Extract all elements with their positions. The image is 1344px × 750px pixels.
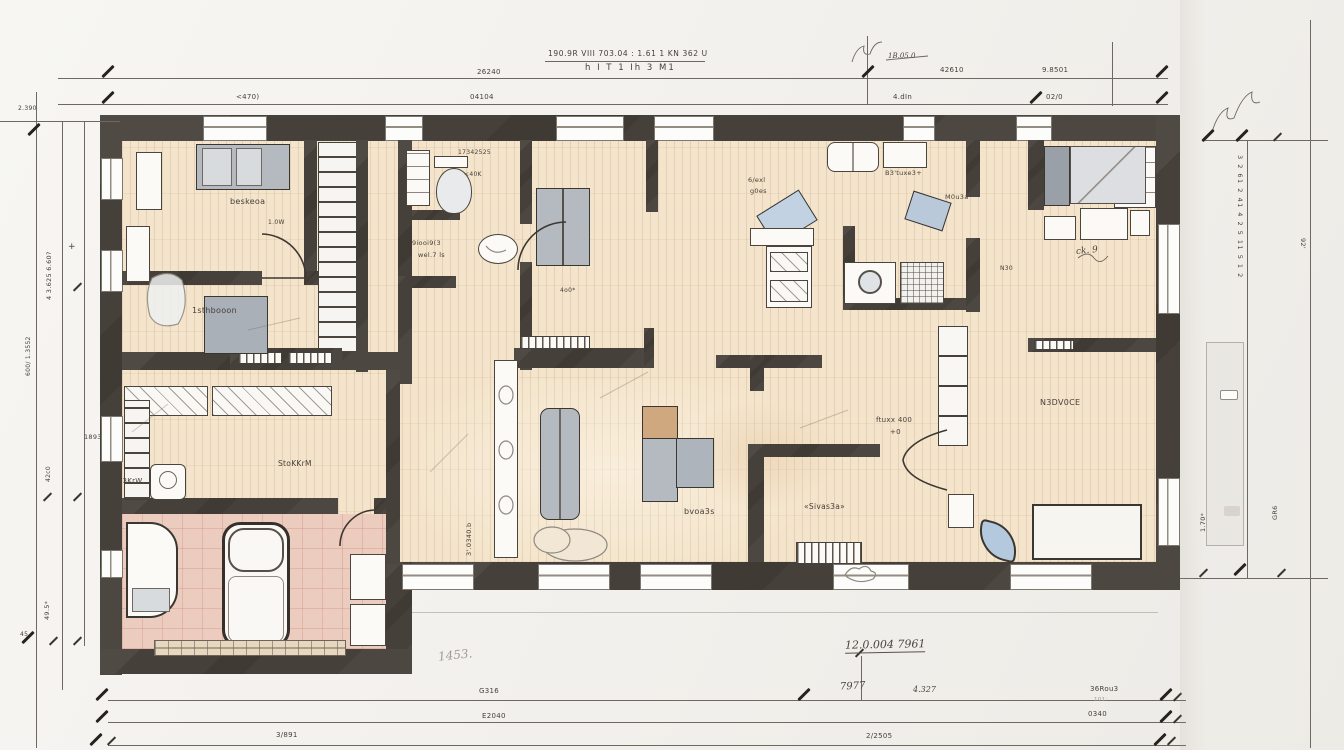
tick bbox=[73, 282, 82, 291]
tick bbox=[95, 688, 108, 701]
dim-label: 4.dIn bbox=[893, 93, 912, 101]
bed-1-pillow-1 bbox=[202, 148, 232, 186]
dim-label-hand: 4.327 bbox=[913, 685, 936, 694]
dim-label: + bbox=[68, 242, 76, 252]
room-label-store-r1: ftuxx 400 bbox=[876, 416, 912, 424]
wall-trbed-left bbox=[1028, 140, 1044, 210]
wing-shelf-box-2 bbox=[350, 604, 386, 646]
dim-label: G316 bbox=[479, 687, 499, 695]
wall-kitchen-right-a bbox=[966, 140, 980, 197]
tick bbox=[73, 492, 82, 501]
kitchen-bed-small bbox=[883, 142, 927, 168]
right-wc-fixture bbox=[948, 494, 974, 528]
dim-note-top: 1B.05.0 bbox=[888, 52, 915, 60]
room-label-bedroom1-sub: 1.0W bbox=[268, 220, 285, 227]
drawing-title-line1: 190.9R VIII 703.04 : 1.61 1 KN 362 U bbox=[548, 50, 708, 59]
t-wall-horizontal bbox=[716, 355, 822, 368]
room-label-kitchen-2: g0es bbox=[750, 188, 767, 195]
dim-label: 3/891 bbox=[276, 731, 298, 739]
wall-bedroom1-right bbox=[304, 140, 317, 285]
tr-bed-headboard bbox=[1044, 146, 1070, 206]
tick bbox=[27, 123, 40, 136]
dim-label: 2/2505 bbox=[866, 732, 892, 740]
tick bbox=[95, 710, 108, 723]
round-basin bbox=[478, 234, 518, 264]
dim-label-hand: 7977 bbox=[840, 680, 866, 692]
fridge-hatch-band-1 bbox=[770, 252, 808, 272]
wall-corridor-left-a bbox=[520, 140, 532, 224]
dim-label: 1893 bbox=[84, 434, 102, 441]
dim-label: 2.390 bbox=[18, 106, 37, 113]
tick bbox=[1155, 91, 1168, 104]
scribble-top-right bbox=[1212, 92, 1260, 132]
shelf-band-slats-2 bbox=[288, 352, 332, 364]
room-label-hall: 4o0* bbox=[560, 288, 576, 295]
tick bbox=[49, 636, 58, 645]
room-label-bedroom2: 1sthbooon bbox=[192, 306, 237, 315]
kitchen-sofa-white bbox=[827, 142, 879, 172]
dim-label-rotated: 49.5* bbox=[44, 601, 51, 620]
bed-1-pillow-2 bbox=[236, 148, 262, 186]
dresser-1 bbox=[136, 152, 162, 210]
dim-label: 36Rou3 bbox=[1090, 685, 1118, 693]
dim-line-left-3 bbox=[84, 122, 85, 646]
tick bbox=[101, 91, 114, 104]
handwritten-note-main: 12.0.004 7961 bbox=[845, 637, 926, 653]
dim-line-bottom-1 bbox=[108, 700, 1186, 701]
tick bbox=[1029, 91, 1042, 104]
room-label-kitchen-1: 6/exl bbox=[748, 177, 765, 184]
window-top-2 bbox=[385, 116, 423, 141]
shadow-line-bottom bbox=[412, 612, 1158, 613]
tr-nightstand bbox=[1044, 216, 1076, 240]
dim-connector-862 bbox=[861, 656, 862, 700]
window-right-1 bbox=[1158, 224, 1180, 314]
window-top-6 bbox=[1016, 116, 1052, 141]
shelfbar-slats bbox=[520, 336, 590, 349]
room-label-shelf-rotated: 3'.0340.b bbox=[466, 523, 473, 556]
bath-sink-cabinet bbox=[406, 150, 430, 206]
room-label-store-r1b: +0 bbox=[890, 428, 901, 436]
wall-storeroom-right bbox=[386, 370, 400, 564]
room-label-shower-2: wel.7 ls bbox=[418, 252, 445, 259]
right-room-whiteboard bbox=[1032, 504, 1142, 560]
radiator bbox=[796, 542, 862, 564]
dim-label-rotated: 4 3.625 6.60? bbox=[46, 251, 53, 300]
room-label-store-l2: 4l0u3KrW bbox=[106, 477, 143, 485]
bathtub-body bbox=[228, 576, 284, 642]
closet-shelving bbox=[318, 142, 358, 354]
wall-bathroom-top-b bbox=[374, 498, 386, 514]
dim-label: 02/0 bbox=[1046, 93, 1063, 101]
dim-line-bottom-3 bbox=[108, 745, 1186, 746]
window-bottom-4 bbox=[833, 564, 909, 590]
room-label-bedroom1: beskeoa bbox=[230, 197, 265, 206]
store-washer-door bbox=[159, 471, 177, 489]
dim-label: 42610 bbox=[940, 66, 964, 74]
dim-label-rotated: 600/ 1.3552 bbox=[26, 336, 33, 376]
drawing-title-line2: h I T 1 Ih 3 M1 bbox=[585, 64, 676, 74]
dim-label: 0340 bbox=[1088, 710, 1107, 718]
title-underline bbox=[545, 61, 705, 62]
tick bbox=[73, 636, 82, 645]
window-top-4 bbox=[654, 116, 714, 141]
wall-bathroom-top-a bbox=[122, 498, 338, 514]
window-left-3 bbox=[101, 416, 123, 462]
store-shelf-2 bbox=[212, 386, 332, 416]
window-left-2 bbox=[101, 250, 123, 292]
bathtub-head bbox=[228, 528, 284, 572]
wall-stub-center bbox=[644, 328, 654, 368]
dim-label-rotated: 92' bbox=[1299, 238, 1306, 249]
dim-line-top-2 bbox=[58, 104, 1168, 105]
window-left-4 bbox=[101, 550, 123, 578]
vanity-sink bbox=[132, 588, 170, 612]
room-label-living: bvoa3s bbox=[684, 507, 715, 516]
tr-bed-mattress bbox=[1070, 146, 1146, 204]
desk-bedroom1 bbox=[204, 296, 268, 354]
dim-line-right-v1 bbox=[1247, 141, 1248, 579]
washing-machine-door bbox=[858, 270, 882, 294]
room-label-store-r2: «Sivas3a» bbox=[804, 503, 845, 512]
dim-line-top-1 bbox=[58, 78, 1168, 79]
window-top-1 bbox=[203, 116, 267, 141]
window-right-2 bbox=[1158, 478, 1180, 546]
sofa-vertical bbox=[540, 408, 580, 520]
dim-line-left-1 bbox=[36, 92, 37, 748]
l-wall-horizontal bbox=[748, 444, 880, 457]
handwritten-note-left: 1453. bbox=[437, 646, 473, 664]
room-label-shower-1: 9iooi9(3 bbox=[412, 240, 441, 247]
dim-guide-1113 bbox=[1112, 42, 1113, 106]
tick bbox=[1277, 568, 1286, 577]
side-table-tan bbox=[642, 406, 678, 440]
tick bbox=[1155, 65, 1168, 78]
right-shade bbox=[1180, 0, 1206, 750]
wall-kitchen-right-b bbox=[966, 238, 980, 312]
dim-label-rotated: 3 2 61 2 41 4 2 5 11 5 1 2 bbox=[1236, 155, 1243, 279]
toilet-tank bbox=[434, 156, 468, 168]
wall-hall-right bbox=[646, 140, 658, 212]
room-label-kitchen-top: B3'tuxe3+ bbox=[885, 170, 922, 177]
half-wall-shelfbar bbox=[514, 348, 654, 368]
fridge-hatch-band-2 bbox=[770, 280, 808, 302]
dim-label: 45 bbox=[20, 632, 28, 639]
wing-window-sill bbox=[154, 640, 346, 656]
dim-label: 26240 bbox=[477, 68, 501, 76]
right-wall-chip bbox=[1220, 390, 1238, 400]
tr-desk bbox=[1080, 208, 1128, 240]
stove-grill bbox=[900, 262, 944, 304]
sectional-sofa-seat bbox=[676, 438, 714, 488]
room-label-bath-top: 17342525 bbox=[458, 150, 491, 157]
dim-label: 101: bbox=[1094, 697, 1108, 703]
tick bbox=[861, 65, 874, 78]
room-label-kitchen-r: M0u3a bbox=[945, 194, 968, 201]
t-wall-stub bbox=[750, 355, 764, 391]
kitchen-counter bbox=[750, 228, 814, 246]
dim-label: E2040 bbox=[482, 712, 506, 720]
hall-cabinet bbox=[536, 188, 590, 266]
cabinet-column bbox=[938, 326, 968, 446]
bookshelf-tall bbox=[494, 360, 518, 558]
dim-label: 9.8501 bbox=[1042, 66, 1068, 74]
dim-label-rotated: 42c0 bbox=[46, 466, 53, 482]
room-label-wc: <40K bbox=[464, 172, 482, 179]
floor-plan-canvas: 190.9R VIII 703.04 : 1.61 1 KN 362 U h I… bbox=[0, 0, 1344, 750]
tick bbox=[101, 65, 114, 78]
dim-line-left-2 bbox=[62, 122, 63, 690]
wall-bedroom1-bottom-b bbox=[304, 271, 318, 285]
tick bbox=[1233, 563, 1246, 576]
window-left-1 bbox=[101, 158, 123, 200]
dresser-2 bbox=[126, 226, 150, 282]
dim-label: 04104 bbox=[470, 93, 494, 101]
tr-board bbox=[1130, 210, 1150, 236]
dim-line-bottom-2 bbox=[108, 722, 1186, 723]
window-top-3 bbox=[556, 116, 624, 141]
tick bbox=[43, 492, 52, 501]
wall-closet-right bbox=[356, 140, 368, 372]
trbed-bottom-slat bbox=[1034, 340, 1074, 350]
room-label-kitchen-n: N30 bbox=[1000, 266, 1013, 273]
room-label-store-l1: StoKKrM bbox=[278, 460, 312, 469]
wall-bath-bottom bbox=[398, 276, 456, 288]
sectional-sofa bbox=[642, 438, 678, 502]
wing-shelf-box-1 bbox=[350, 554, 386, 600]
window-top-5 bbox=[903, 116, 935, 141]
window-bottom-3 bbox=[640, 564, 712, 590]
dim-label: <470) bbox=[236, 93, 259, 101]
window-bottom-2 bbox=[538, 564, 610, 590]
l-wall-leg bbox=[748, 444, 764, 562]
dim-line-right-v2 bbox=[1310, 20, 1311, 748]
window-bottom-5 bbox=[1010, 564, 1092, 590]
dim-line-left-h bbox=[0, 121, 120, 122]
dim-label-rotated: GR6 bbox=[1272, 505, 1279, 520]
room-label-right-room: N3DV0CE bbox=[1040, 398, 1080, 407]
window-bottom-1 bbox=[402, 564, 474, 590]
right-wall-smudge bbox=[1224, 506, 1240, 516]
tick bbox=[89, 733, 102, 746]
